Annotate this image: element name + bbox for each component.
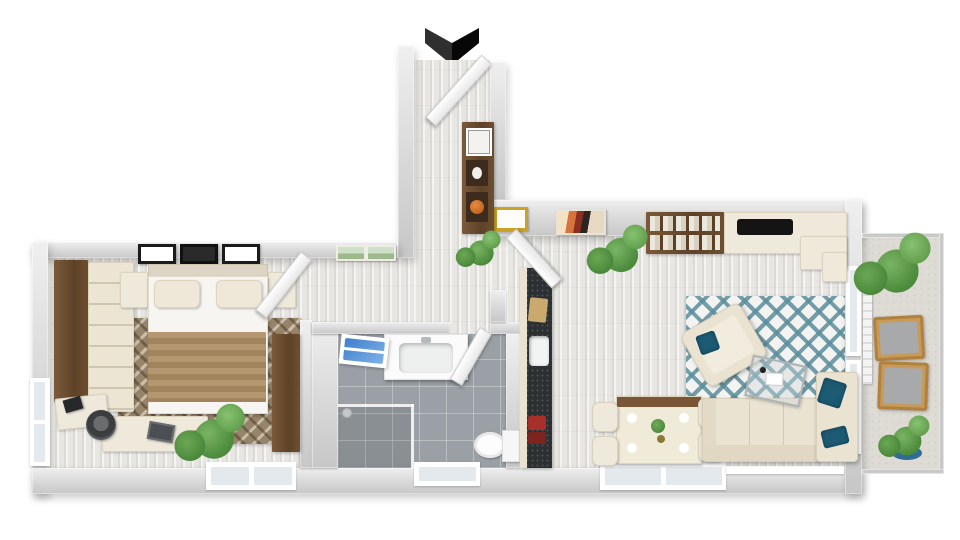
- bedroom-picture-3: [222, 244, 260, 264]
- toilet-tank: [502, 430, 520, 462]
- orange-pot: [470, 200, 484, 214]
- kitchen-cabinet-front: [520, 268, 527, 468]
- hallway-picture-1: [336, 245, 366, 261]
- vase: [472, 167, 482, 179]
- shower-head: [342, 408, 352, 418]
- colorful-wall-art: [556, 209, 606, 235]
- dining-table: [616, 396, 702, 464]
- bedroom-picture-2: [180, 244, 218, 264]
- table-centerpiece-plant: [651, 419, 665, 433]
- balcony-radiator: [863, 288, 872, 384]
- plate: [679, 443, 689, 453]
- dining-table-wood-trim: [617, 397, 701, 407]
- balcony-large-plant: [875, 249, 918, 292]
- balcony-railing-right: [939, 233, 944, 474]
- dining-bottom-window: [600, 462, 726, 490]
- balcony-chair-2: [877, 361, 929, 411]
- corner-counter-return: [822, 252, 847, 282]
- coffee-table-decor: [759, 366, 766, 373]
- floor-plan-canvas: [0, 0, 960, 540]
- plate: [679, 413, 689, 423]
- balcony-railing-bottom: [862, 469, 944, 474]
- shelf-picture: [466, 128, 492, 156]
- wardrobe-side-panel: [54, 260, 88, 402]
- shelf-vase: [466, 160, 488, 186]
- window-glass: [604, 466, 662, 486]
- balcony-potted-plant: [893, 427, 922, 456]
- table-bottle: [657, 435, 665, 443]
- hall-living-junction-wall: [490, 290, 506, 322]
- window-glass: [210, 466, 250, 486]
- bedroom-bottom-window: [206, 462, 296, 490]
- bathroom-top-wall-a: [312, 322, 450, 334]
- window-glass: [253, 466, 293, 486]
- office-chair: [86, 410, 116, 440]
- kitchen-sink: [529, 336, 549, 366]
- vanity-faucet: [421, 337, 431, 343]
- bedroom-hall-divider-wall: [300, 320, 312, 468]
- hallway-plant: [468, 240, 493, 265]
- living-room-plant: [604, 238, 638, 272]
- bedroom-picture-1: [138, 244, 176, 264]
- red-utensil-2: [528, 432, 546, 444]
- hallway-shelf-unit: [462, 122, 494, 234]
- dining-chair-1: [592, 402, 618, 432]
- sofa-cushion-divider: [783, 401, 784, 445]
- balcony-chair-1: [873, 315, 925, 362]
- window-glass: [418, 466, 477, 482]
- shower-glass-side: [411, 404, 414, 468]
- towel-radiator: [339, 334, 390, 369]
- window-glass: [33, 381, 46, 421]
- bedroom-plant: [194, 419, 234, 459]
- bedroom-left-window: [30, 378, 50, 466]
- dining-chair-2: [592, 436, 618, 466]
- bed-blanket: [148, 332, 266, 402]
- window-glass: [665, 466, 723, 486]
- sofa-cushion-divider: [749, 401, 750, 445]
- cutting-board: [528, 297, 548, 323]
- chair-cushion: [883, 367, 922, 404]
- open-shelving-unit: [646, 212, 724, 254]
- corridor-left-wall: [398, 46, 414, 258]
- living-window-sill: [726, 466, 844, 474]
- cooktop: [737, 219, 793, 235]
- bathroom-top-wall-b: [490, 322, 520, 334]
- nightstand-left: [120, 272, 148, 308]
- window-glass: [33, 423, 46, 463]
- hallway-picture-2: [366, 245, 396, 261]
- shelf-orange-pot: [466, 192, 488, 222]
- chair-cushion: [879, 321, 919, 355]
- shower-glass-top: [338, 404, 414, 407]
- coffee-table-magazine: [766, 373, 783, 385]
- red-utensil-1: [528, 416, 546, 430]
- shelf-dishes-row-top: [650, 216, 720, 231]
- double-bed: [148, 264, 266, 412]
- gold-framed-picture: [494, 207, 528, 231]
- bathroom-window: [414, 462, 480, 486]
- hallway-stub-floor: [300, 258, 414, 322]
- shelf-dishes-row-bottom: [650, 235, 720, 250]
- bed-pillow-left: [154, 280, 200, 308]
- tall-cabinet: [272, 334, 300, 452]
- bathroom-left-wall: [312, 322, 338, 468]
- plate: [627, 413, 637, 423]
- kitchen-counter: [520, 268, 552, 468]
- vanity-basin: [399, 343, 453, 373]
- plate: [627, 443, 637, 453]
- bed-pillow-right: [216, 280, 262, 308]
- sofa-back: [703, 445, 819, 461]
- sofa: [702, 398, 820, 462]
